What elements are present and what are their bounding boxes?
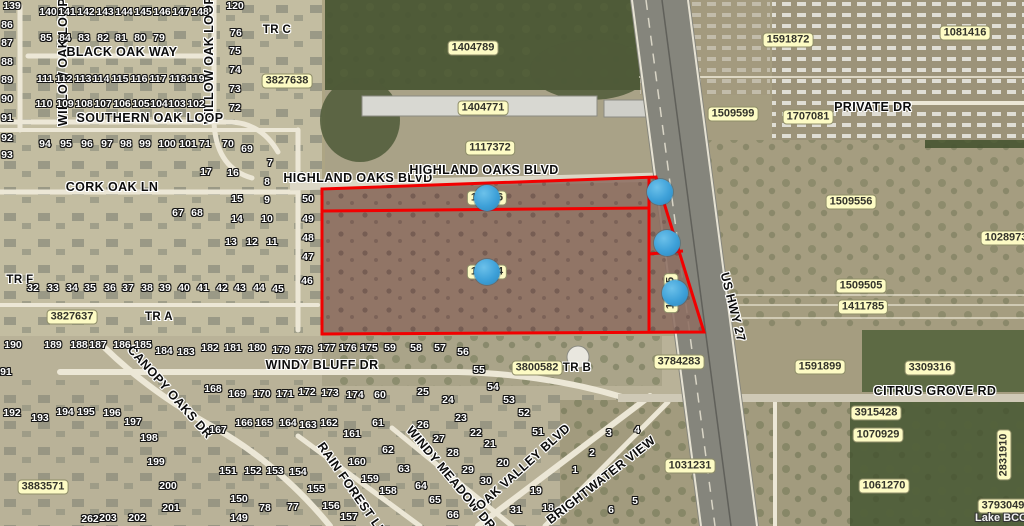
lot-number: 118: [170, 73, 187, 85]
parcel-id-label[interactable]: 3883571: [18, 480, 69, 495]
parcel-id-label[interactable]: 2831910: [997, 430, 1012, 481]
lot-number: 153: [266, 465, 284, 477]
lot-number: 98: [120, 138, 132, 150]
lot-number: 102: [187, 98, 205, 110]
lot-number: 189: [44, 339, 62, 351]
lot-number: 105: [132, 98, 150, 110]
lot-number: 50: [302, 193, 314, 205]
lot-number: 192: [3, 407, 21, 419]
parcel-id-label[interactable]: 1411785: [838, 300, 888, 315]
lot-number: 104: [150, 98, 168, 110]
lot-number: 203: [99, 512, 117, 524]
lot-number: 200: [159, 480, 177, 492]
lot-number: 141: [58, 6, 76, 18]
lot-number: 47: [302, 251, 314, 263]
lot-number: 181: [224, 342, 242, 354]
street-label: CORK OAK LN: [66, 180, 159, 194]
lot-number: 26: [417, 419, 429, 431]
parcel-id-label[interactable]: 1070929: [853, 428, 904, 443]
lot-number: 155: [307, 483, 325, 495]
lot-number: 66: [447, 509, 459, 521]
lot-number: 157: [340, 511, 358, 523]
lot-number: 145: [134, 6, 152, 18]
lot-number: 89: [1, 74, 13, 86]
lot-number: 42: [216, 282, 228, 294]
lot-number: 7: [267, 157, 273, 169]
lot-number: 110: [36, 98, 53, 110]
lot-number: 109: [56, 98, 74, 110]
lot-number: 187: [89, 339, 107, 351]
lot-number: 262: [81, 513, 99, 525]
lot-number: 51: [532, 426, 544, 438]
lot-number: 25: [417, 386, 429, 398]
lot-number: 88: [1, 56, 13, 68]
lot-number: 114: [93, 73, 110, 85]
lot-number: 111: [37, 73, 53, 85]
lot-number: 9: [264, 194, 270, 206]
lot-number: 156: [322, 500, 340, 512]
lot-number: 85: [40, 32, 52, 44]
lot-number: 143: [96, 6, 114, 18]
lot-number: 169: [228, 388, 246, 400]
parcel-id-label[interactable]: 1031231: [665, 459, 716, 474]
lot-number: 178: [295, 344, 313, 356]
lot-number: 150: [230, 493, 248, 505]
lot-number: 107: [94, 98, 112, 110]
lot-number: 120: [226, 0, 244, 12]
lot-number: 45: [272, 283, 284, 295]
lot-number: 108: [75, 98, 93, 110]
lot-number: 166: [235, 417, 253, 429]
lot-number: 28: [447, 447, 459, 459]
lot-number: 36: [104, 282, 116, 294]
parcel-id-label[interactable]: 1081416: [940, 26, 991, 41]
lot-number: 32: [27, 282, 39, 294]
lot-number: 182: [201, 342, 219, 354]
lot-number: 6: [608, 504, 614, 516]
lot-number: 19: [530, 485, 542, 497]
lot-number: 103: [168, 98, 186, 110]
lot-number: 202: [128, 512, 146, 524]
lot-number: 142: [77, 6, 95, 18]
lot-number: 22: [470, 427, 482, 439]
lot-number: 63: [398, 463, 410, 475]
lot-number: 186: [113, 339, 131, 351]
lot-number: 67: [172, 207, 184, 219]
lot-number: 1: [572, 464, 578, 476]
parcel-id-label[interactable]: 3827637: [47, 310, 98, 325]
lot-number: 152: [244, 465, 262, 477]
blue-location-marker[interactable]: [662, 280, 688, 306]
lot-number: 163: [299, 419, 317, 431]
lot-number: 31: [510, 504, 522, 516]
lot-number: 79: [153, 32, 165, 44]
lot-number: 101: [179, 138, 197, 150]
lot-number: 112: [56, 73, 73, 85]
lot-number: 201: [162, 502, 180, 514]
lot-number: 4: [634, 424, 640, 436]
lot-number: 15: [231, 193, 243, 205]
lot-number: 191: [0, 366, 12, 378]
parcel-id-label[interactable]: 1509556: [826, 195, 877, 210]
lot-number: 38: [141, 282, 153, 294]
lot-number: 174: [346, 389, 364, 401]
street-label: WINDY BLUFF DR: [266, 358, 379, 372]
parcel-id-label[interactable]: 1061270: [859, 479, 910, 494]
lot-number: 62: [382, 444, 394, 456]
lot-number: 183: [177, 346, 195, 358]
lot-number: 33: [47, 282, 59, 294]
lot-number: 52: [518, 407, 530, 419]
lot-number: 12: [246, 236, 258, 248]
street-label: SOUTHERN OAK LOOP: [76, 111, 223, 125]
lot-number: 40: [178, 282, 190, 294]
street-label: HIGHLAND OAKS BLVD: [409, 163, 558, 177]
blue-location-marker[interactable]: [474, 259, 500, 285]
lot-number: 144: [115, 6, 133, 18]
lot-number: 99: [139, 138, 151, 150]
lot-number: 21: [484, 438, 496, 450]
lot-number: 190: [4, 339, 22, 351]
parcel-id-label[interactable]: 3784283: [654, 355, 705, 370]
lot-number: 92: [1, 132, 13, 144]
lot-number: 199: [147, 456, 165, 468]
lot-number: 34: [66, 282, 78, 294]
lot-number: 161: [343, 428, 361, 440]
lot-number: 196: [103, 407, 121, 419]
lot-number: 30: [480, 475, 492, 487]
blue-location-marker[interactable]: [654, 230, 680, 256]
street-label: TR B: [563, 362, 591, 374]
lot-number: 140: [39, 6, 57, 18]
lot-number: 13: [225, 236, 237, 248]
lot-number: 16: [227, 167, 239, 179]
lot-number: 24: [442, 394, 454, 406]
lot-number: 171: [276, 388, 294, 400]
subject-parcel: [322, 177, 704, 334]
lot-number: 74: [229, 64, 241, 76]
lot-number: 185: [134, 339, 152, 351]
lot-number: 149: [230, 512, 248, 524]
lot-number: 86: [1, 19, 13, 31]
lot-number: 17: [200, 166, 212, 178]
lot-number: 197: [124, 416, 142, 428]
lot-number: 146: [153, 6, 171, 18]
lot-number: 10: [261, 213, 273, 225]
lot-number: 80: [134, 32, 146, 44]
lot-number: 44: [253, 282, 265, 294]
lot-number: 8: [264, 176, 270, 188]
lot-number: 69: [241, 143, 253, 155]
lot-number: 97: [101, 138, 113, 150]
blue-location-marker[interactable]: [474, 185, 500, 211]
lot-number: 167: [209, 424, 227, 436]
lot-number: 60: [374, 389, 386, 401]
lot-number: 100: [158, 138, 176, 150]
lake-watermark-text: Lake BCC: [975, 512, 1024, 524]
lot-number: 77: [287, 501, 299, 513]
lot-number: 151: [219, 465, 237, 477]
lot-number: 29: [462, 464, 474, 476]
lot-number: 90: [1, 93, 13, 105]
lot-number: 198: [140, 432, 158, 444]
lot-number: 75: [229, 45, 241, 57]
lot-number: 55: [473, 364, 485, 376]
lot-number: 3: [606, 427, 612, 439]
lot-number: 164: [279, 417, 297, 429]
lot-number: 72: [229, 102, 241, 114]
lot-number: 159: [361, 473, 379, 485]
parcel-id-label[interactable]: 1707081: [783, 110, 834, 125]
parcel-id-label[interactable]: 3309316: [905, 361, 956, 376]
lot-number: 180: [248, 342, 266, 354]
lot-number: 119: [188, 73, 205, 85]
lot-number: 93: [1, 149, 13, 161]
lot-number: 41: [197, 282, 209, 294]
lot-number: 113: [75, 73, 92, 85]
lot-number: 170: [253, 388, 271, 400]
lot-number: 58: [410, 342, 422, 354]
lot-number: 35: [84, 282, 96, 294]
lot-number: 148: [191, 6, 209, 18]
lot-number: 117: [150, 73, 167, 85]
lot-number: 172: [298, 386, 316, 398]
street-label: TR A: [145, 311, 173, 323]
lot-number: 139: [3, 0, 21, 12]
lot-number: 61: [372, 417, 384, 429]
lot-number: 65: [429, 494, 441, 506]
lot-number: 57: [434, 342, 446, 354]
lot-number: 179: [272, 344, 290, 356]
lot-number: 82: [97, 32, 109, 44]
lot-number: 73: [229, 83, 241, 95]
lot-number: 193: [31, 412, 49, 424]
parcel-id-label[interactable]: 3915428: [851, 406, 902, 421]
lot-number: 76: [230, 27, 242, 39]
lot-number: 177: [318, 342, 336, 354]
parcel-id-label[interactable]: 3827638: [262, 74, 313, 89]
lot-number: 11: [266, 236, 277, 248]
parcel-id-label[interactable]: 1591872: [763, 33, 814, 48]
lot-number: 106: [113, 98, 131, 110]
blue-location-marker[interactable]: [647, 179, 673, 205]
lot-number: 71: [199, 138, 211, 150]
lot-number: 194: [56, 406, 74, 418]
lot-number: 96: [81, 138, 93, 150]
parcel-id-label[interactable]: 1591899: [795, 360, 846, 375]
lot-number: 195: [77, 406, 95, 418]
lot-number: 147: [172, 6, 190, 18]
street-label: PRIVATE DR: [834, 100, 912, 114]
lot-number: 188: [70, 339, 88, 351]
lot-number: 53: [503, 394, 515, 406]
lot-number: 20: [497, 457, 509, 469]
lot-number: 14: [231, 213, 243, 225]
lot-number: 49: [302, 213, 314, 225]
lot-number: 184: [155, 345, 173, 357]
lot-number: 158: [379, 485, 397, 497]
lot-number: 87: [1, 37, 13, 49]
street-label: CITRUS GROVE RD: [874, 384, 997, 398]
lot-number: 54: [487, 381, 499, 393]
lot-number: 43: [234, 282, 246, 294]
lot-number: 115: [112, 73, 129, 85]
parcel-id-label[interactable]: 1404771: [458, 101, 509, 116]
lot-number: 46: [301, 275, 313, 287]
parcel-id-label[interactable]: 1509505: [836, 279, 887, 294]
street-label: TR C: [263, 24, 291, 36]
lot-number: 68: [191, 207, 203, 219]
lot-number: 173: [321, 387, 339, 399]
parcel-id-label[interactable]: 1404789: [448, 41, 499, 56]
lot-number: 91: [1, 112, 13, 124]
lot-number: 37: [122, 282, 134, 294]
lot-number: 95: [60, 138, 72, 150]
lot-number: 2: [589, 447, 595, 459]
lot-number: 165: [255, 417, 273, 429]
lot-number: 168: [204, 383, 222, 395]
parcel-id-label[interactable]: 1028973: [981, 231, 1024, 246]
lot-number: 116: [131, 73, 148, 85]
lot-number: 70: [222, 138, 234, 150]
lot-number: 18: [542, 502, 554, 514]
lot-number: 64: [415, 480, 427, 492]
lot-number: 84: [59, 32, 71, 44]
parcel-id-label[interactable]: 1117372: [465, 141, 515, 156]
aerial-parcel-map: WILLOW OAK LOOPWILLOW OAK LOOPBLACK OAK …: [0, 0, 1024, 526]
lot-number: 94: [39, 138, 51, 150]
lot-number: 83: [78, 32, 90, 44]
lot-number: 78: [259, 502, 271, 514]
lot-number: 48: [302, 232, 314, 244]
lot-number: 56: [457, 346, 469, 358]
lot-number: 23: [455, 412, 467, 424]
lot-number: 27: [433, 433, 445, 445]
street-label: BLACK OAK WAY: [67, 45, 178, 59]
lot-number: 59: [384, 342, 396, 354]
lot-number: 162: [320, 417, 338, 429]
lot-number: 175: [360, 342, 378, 354]
lot-number: 154: [289, 466, 307, 478]
lot-number: 5: [632, 495, 638, 507]
lot-number: 160: [348, 456, 366, 468]
lot-number: 39: [159, 282, 171, 294]
parcel-id-label[interactable]: 1509599: [708, 107, 759, 122]
lot-number: 81: [115, 32, 127, 44]
lot-number: 176: [339, 342, 357, 354]
parcel-id-label[interactable]: 3800582: [512, 361, 563, 376]
